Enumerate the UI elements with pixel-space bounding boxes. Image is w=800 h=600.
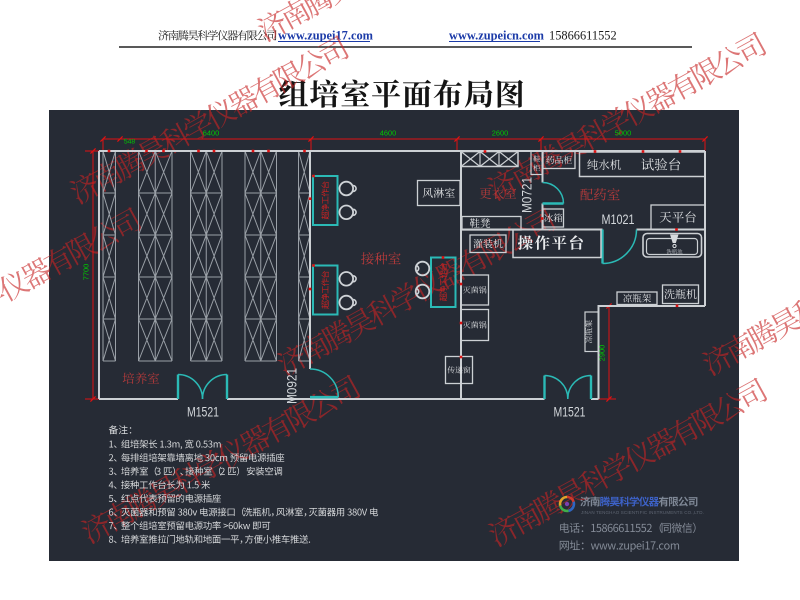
svg-text:M0721: M0721: [520, 177, 535, 213]
svg-text:4600: 4600: [380, 129, 396, 138]
svg-text:JINAN TENGHAO SCIENTIFIC INSTR: JINAN TENGHAO SCIENTIFIC INSTRUMENTS CO.…: [581, 510, 704, 515]
svg-text:www.zupeicn.com: www.zupeicn.com: [449, 29, 545, 43]
svg-text:5000: 5000: [615, 129, 631, 138]
svg-text:2600: 2600: [492, 129, 508, 138]
svg-text:548: 548: [124, 139, 136, 146]
svg-text:6400: 6400: [203, 129, 219, 138]
svg-text:www.zupei17.com: www.zupei17.com: [278, 29, 374, 43]
svg-text:7700: 7700: [82, 264, 91, 280]
svg-text:M0921: M0921: [285, 368, 300, 404]
svg-text:M1021: M1021: [602, 211, 635, 227]
svg-text:M1521: M1521: [187, 405, 219, 420]
svg-text:M1521: M1521: [554, 405, 586, 420]
svg-text:15866611552: 15866611552: [549, 29, 617, 43]
